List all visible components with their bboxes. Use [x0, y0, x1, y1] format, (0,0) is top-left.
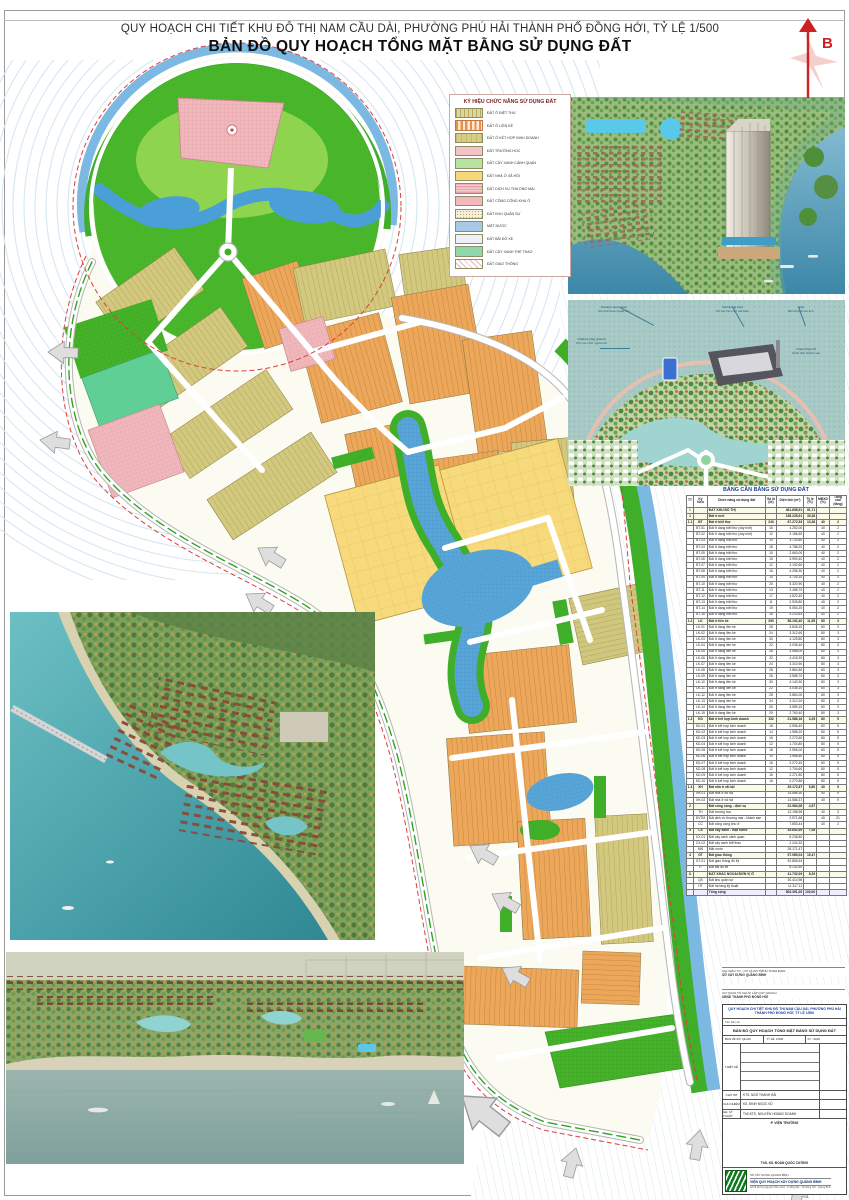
project-name: QUY HOẠCH CHI TIẾT KHU ĐÔ THỊ NAM CẦU DÀ…: [723, 1005, 846, 1018]
legend-item-label: ĐẤT BÃI ĐỖ XE: [487, 237, 513, 241]
designers-list: [741, 1044, 819, 1090]
deputy-director-name: ThS. KS. ĐOÀN QUỐC CƯỜNG: [761, 1161, 808, 1165]
legend-swatch: [455, 246, 483, 257]
legend-swatch: [455, 234, 483, 245]
plan-sheet: QUY HOẠCH CHI TIẾT KHU ĐÔ THỊ NAM CẦU DÀ…: [0, 0, 849, 1200]
legend-item-label: MẶT NƯỚC: [487, 224, 507, 228]
legend-item: ĐẤT KHU QUÂN SỰ: [455, 209, 567, 219]
render-aerial-tower: [568, 97, 845, 294]
legend-item-label: ĐẤT CÂY XANH CẢNH QUAN: [487, 161, 536, 165]
page-subtitle: BẢN ĐỒ QUY HOẠCH TỔNG MẶT BẰNG SỬ DỤNG Đ…: [70, 38, 770, 56]
legend-item-label: ĐẤT NHÀ Ở XÃ HỘI: [487, 174, 520, 178]
sheet-scale: TỶ LỆ: 1/500: [764, 1036, 805, 1043]
legend-swatch: [455, 158, 483, 169]
page-title: QUY HOẠCH CHI TIẾT KHU ĐÔ THỊ NAM CẦU DÀ…: [70, 23, 770, 35]
institute-address: Số 05 Đường Nguyễn Hữu Cảnh - P. Đồng Mỹ…: [750, 1187, 831, 1190]
deputy-director-cell: P. VIỆN TRƯỞNG ThS. KS. ĐOÀN QUỐC CƯỜNG: [723, 1119, 846, 1167]
drawing-name: BẢN ĐỒ QUY HOẠCH TỔNG MẶT BẰNG SỬ DỤNG Đ…: [723, 1026, 846, 1035]
photo-panorama: [6, 952, 464, 1164]
legend-item: ĐẤT DỊCH VỤ THƯƠNG MẠI: [455, 184, 567, 194]
north-arrow: B: [780, 16, 846, 102]
institute-name: VIỆN QUY HOẠCH XÂY DỰNG QUẢNG BÌNH: [750, 1178, 831, 1186]
north-label: B: [822, 35, 833, 52]
tech-director-label: GĐ. KỸ THUẬT: [723, 1110, 741, 1118]
land-use-table: TTKý hiệu Chức năng sử dụng đấtSố lô (lô…: [686, 495, 847, 897]
legend-swatch: [455, 259, 483, 270]
legend-item: MẶT NƯỚC: [455, 221, 567, 231]
lead-label: CHỦ TRÌ: [723, 1091, 741, 1099]
legend-swatch: [455, 133, 483, 144]
approval-investor: CHỦ ĐẦU TƯ - CƠ QUAN TRÌNH THẨM ĐỊNH: SỞ…: [722, 962, 845, 977]
table-total-row: Tổng cộng 503.391,00100,00: [687, 890, 847, 896]
legend-panel: KÝ HIỆU CHỨC NĂNG SỬ DỤNG ĐẤT ĐẤT Ở BIỆT…: [449, 94, 571, 277]
legend-item: ĐẤT BÃI ĐỖ XE: [455, 234, 567, 244]
table-header-row: TTKý hiệu Chức năng sử dụng đấtSố lô (lô…: [687, 495, 847, 507]
designer-name: [741, 1081, 819, 1089]
legend-list: ĐẤT Ở BIỆT THỰ ĐẤT Ở LIỀN KỀ ĐẤT Ở KẾT H…: [453, 108, 567, 269]
investor-value: SỞ XÂY DỰNG QUẢNG BÌNH: [722, 973, 766, 977]
organization-block: SỞ XÂY DỰNG QUẢNG BÌNH VIỆN QUY HOẠCH XÂ…: [723, 1168, 833, 1194]
annotation-leader: [600, 348, 630, 349]
designer-name: [741, 1044, 819, 1053]
designer-name: [741, 1053, 819, 1062]
designer-name: [741, 1072, 819, 1081]
legend-swatch: [455, 108, 483, 119]
land-use-table-panel: BẢNG CÂN BẰNG SỬ DỤNG ĐẤT TTKý hiệu Chức…: [686, 487, 846, 896]
legend-swatch: [455, 221, 483, 232]
legend-item: ĐẤT GIAO THÔNG: [455, 259, 567, 269]
legend-item: ĐẤT Ở BIỆT THỰ: [455, 108, 567, 118]
legend-item: ĐẤT CÔNG CỘNG KHU Ở: [455, 196, 567, 206]
lead-name: KTS. NGÔ THANH HẢI: [741, 1091, 819, 1099]
legend-item: ĐẤT CÂY XANH CẢNH QUAN: [455, 158, 567, 168]
legend-item: ĐẤT Ở LIỀN KỀ: [455, 121, 567, 131]
legend-item: ĐẤT NHÀ Ở XÃ HỘI: [455, 171, 567, 181]
legend-swatch: [455, 209, 483, 220]
legend-item-label: ĐẤT Ở LIỀN KỀ: [487, 124, 513, 128]
land-use-table-title: BẢNG CÂN BẰNG SỬ DỤNG ĐẤT: [686, 487, 846, 493]
legend-swatch: [455, 183, 483, 194]
signature-line: [722, 962, 845, 968]
manager-name: KS. ĐINH NGỌC VŨ: [741, 1100, 819, 1108]
sheet-number: BẢN VẼ SỐ: QH-06: [723, 1036, 764, 1043]
annotation-dropoff: Hotel Drop-offSảnh đón khách sạn: [792, 348, 820, 355]
title-block: QUY HOẠCH CHI TIẾT KHU ĐÔ THỊ NAM CẦU DÀ…: [722, 1004, 847, 1195]
legend-item: ĐẤT TRƯỜNG HỌC: [455, 146, 567, 156]
legend-swatch: [455, 120, 483, 131]
legend-item-label: ĐẤT CÔNG CỘNG KHU Ở: [487, 199, 530, 203]
photo-coastal-aerial: [10, 612, 375, 940]
legend-item-label: ĐẤT DỊCH VỤ THƯƠNG MẠI: [487, 187, 535, 191]
legend-item: ĐẤT CÂY XANH THỂ THAO: [455, 247, 567, 257]
legend-swatch: [455, 196, 483, 207]
annotation-playground: Outdoor play groundKhu vui chơi ngoài tr…: [576, 338, 607, 345]
legend-item-label: ĐẤT CÂY XANH THỂ THAO: [487, 250, 532, 254]
institute-logo: [725, 1170, 747, 1192]
designer-signatures: [819, 1044, 846, 1090]
signature-line: [722, 984, 845, 990]
designers-label: THIẾT KẾ: [723, 1044, 741, 1090]
legend-item-label: ĐẤT TRƯỜNG HỌC: [487, 149, 520, 153]
legend-title: KÝ HIỆU CHỨC NĂNG SỬ DỤNG ĐẤT: [453, 99, 567, 105]
legend-item-label: ĐẤT KHU QUÂN SỰ: [487, 212, 521, 216]
legend-item-label: ĐẤT GIAO THÔNG: [487, 262, 518, 266]
department-name: SỞ XÂY DỰNG QUẢNG BÌNH: [750, 1173, 831, 1177]
authority-value: UBND THÀNH PHỐ ĐỒNG HỚI: [722, 995, 768, 999]
manager-label: CHỦ NHIỆM: [723, 1100, 741, 1108]
sheet-date: 07 - 2018: [806, 1036, 846, 1043]
legend-item-label: ĐẤT Ở BIỆT THỰ: [487, 111, 516, 115]
legend-item: ĐẤT Ở KẾT HỢP KINH DOANH: [455, 133, 567, 143]
drawing-name-label: Tên bản vẽ:: [723, 1019, 742, 1025]
legend-swatch: [455, 171, 483, 182]
designer-name: [741, 1063, 819, 1072]
render-park-top: [568, 300, 845, 486]
approval-authority: CƠ QUAN TỔ CHỨC LẬP QUY HOẠCH: UBND THÀN…: [722, 984, 845, 999]
deputy-director-title: P. VIỆN TRƯỞNG: [771, 1121, 799, 1125]
legend-item-label: ĐẤT Ở KẾT HỢP KINH DOANH: [487, 136, 539, 140]
tech-director-name: ThS.KTS. NGUYỄN HOÀNG DOANH: [741, 1110, 819, 1118]
legend-swatch: [455, 146, 483, 157]
